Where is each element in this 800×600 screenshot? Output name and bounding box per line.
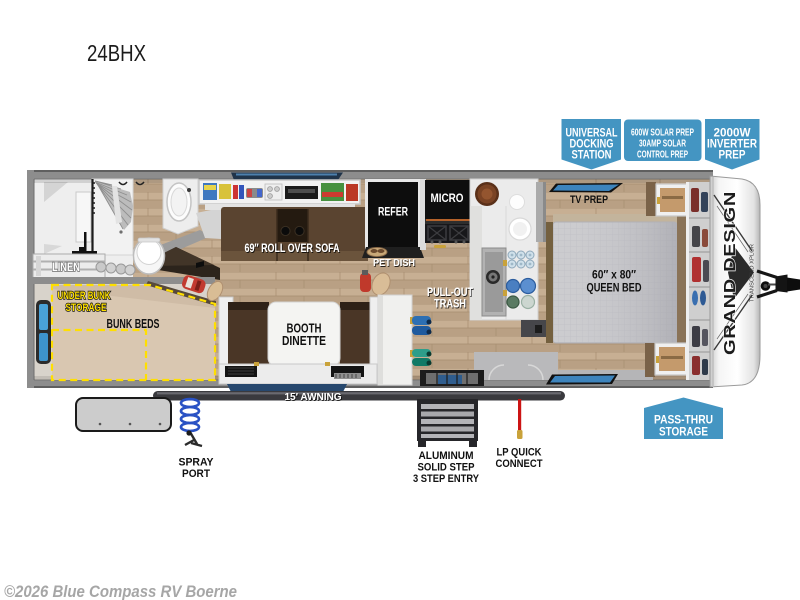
svg-text:UNDER BUNK: UNDER BUNK bbox=[58, 290, 111, 302]
svg-text:STORAGE: STORAGE bbox=[66, 302, 107, 314]
svg-text:ALUMINUM: ALUMINUM bbox=[419, 450, 474, 462]
svg-text:LINEN: LINEN bbox=[52, 262, 80, 274]
svg-text:30AMP SOLAR: 30AMP SOLAR bbox=[639, 139, 686, 150]
svg-text:600W SOLAR PREP: 600W SOLAR PREP bbox=[631, 128, 694, 139]
svg-text:PET DISH: PET DISH bbox=[373, 257, 415, 269]
svg-text:STATION: STATION bbox=[572, 150, 612, 162]
svg-text:PULL-OUT: PULL-OUT bbox=[427, 287, 473, 299]
svg-text:GRAND DESIGN: GRAND DESIGN bbox=[722, 191, 739, 355]
svg-text:LP QUICK: LP QUICK bbox=[497, 447, 542, 459]
svg-text:PASS-THRU: PASS-THRU bbox=[654, 415, 713, 427]
svg-text:3 STEP ENTRY: 3 STEP ENTRY bbox=[413, 473, 480, 485]
svg-text:TRASH: TRASH bbox=[434, 299, 466, 311]
svg-text:69″ ROLL OVER SOFA: 69″ ROLL OVER SOFA bbox=[245, 243, 340, 255]
svg-text:24BHX: 24BHX bbox=[87, 40, 146, 66]
svg-text:MICRO: MICRO bbox=[431, 193, 464, 205]
svg-text:©2026 Blue Compass RV Boerne: ©2026 Blue Compass RV Boerne bbox=[4, 582, 237, 600]
svg-text:PORT: PORT bbox=[182, 468, 210, 480]
svg-text:PREP: PREP bbox=[719, 150, 746, 162]
svg-text:SPRAY: SPRAY bbox=[179, 457, 215, 469]
svg-text:QUEEN BED: QUEEN BED bbox=[587, 283, 642, 295]
svg-text:STORAGE: STORAGE bbox=[659, 427, 708, 439]
svg-text:15′ AWNING: 15′ AWNING bbox=[285, 391, 342, 403]
svg-text:SOLID STEP: SOLID STEP bbox=[418, 462, 475, 474]
svg-text:TRANSCEND XPLOR: TRANSCEND XPLOR bbox=[750, 244, 756, 302]
svg-text:CONNECT: CONNECT bbox=[496, 458, 543, 470]
svg-text:BUNK BEDS: BUNK BEDS bbox=[107, 317, 160, 331]
svg-text:TV PREP: TV PREP bbox=[570, 194, 608, 206]
svg-text:CONTROL PREP: CONTROL PREP bbox=[637, 150, 688, 161]
svg-text:REFER: REFER bbox=[378, 205, 408, 219]
svg-text:DINETTE: DINETTE bbox=[282, 334, 326, 348]
svg-text:60″ x 80″: 60″ x 80″ bbox=[592, 270, 636, 282]
